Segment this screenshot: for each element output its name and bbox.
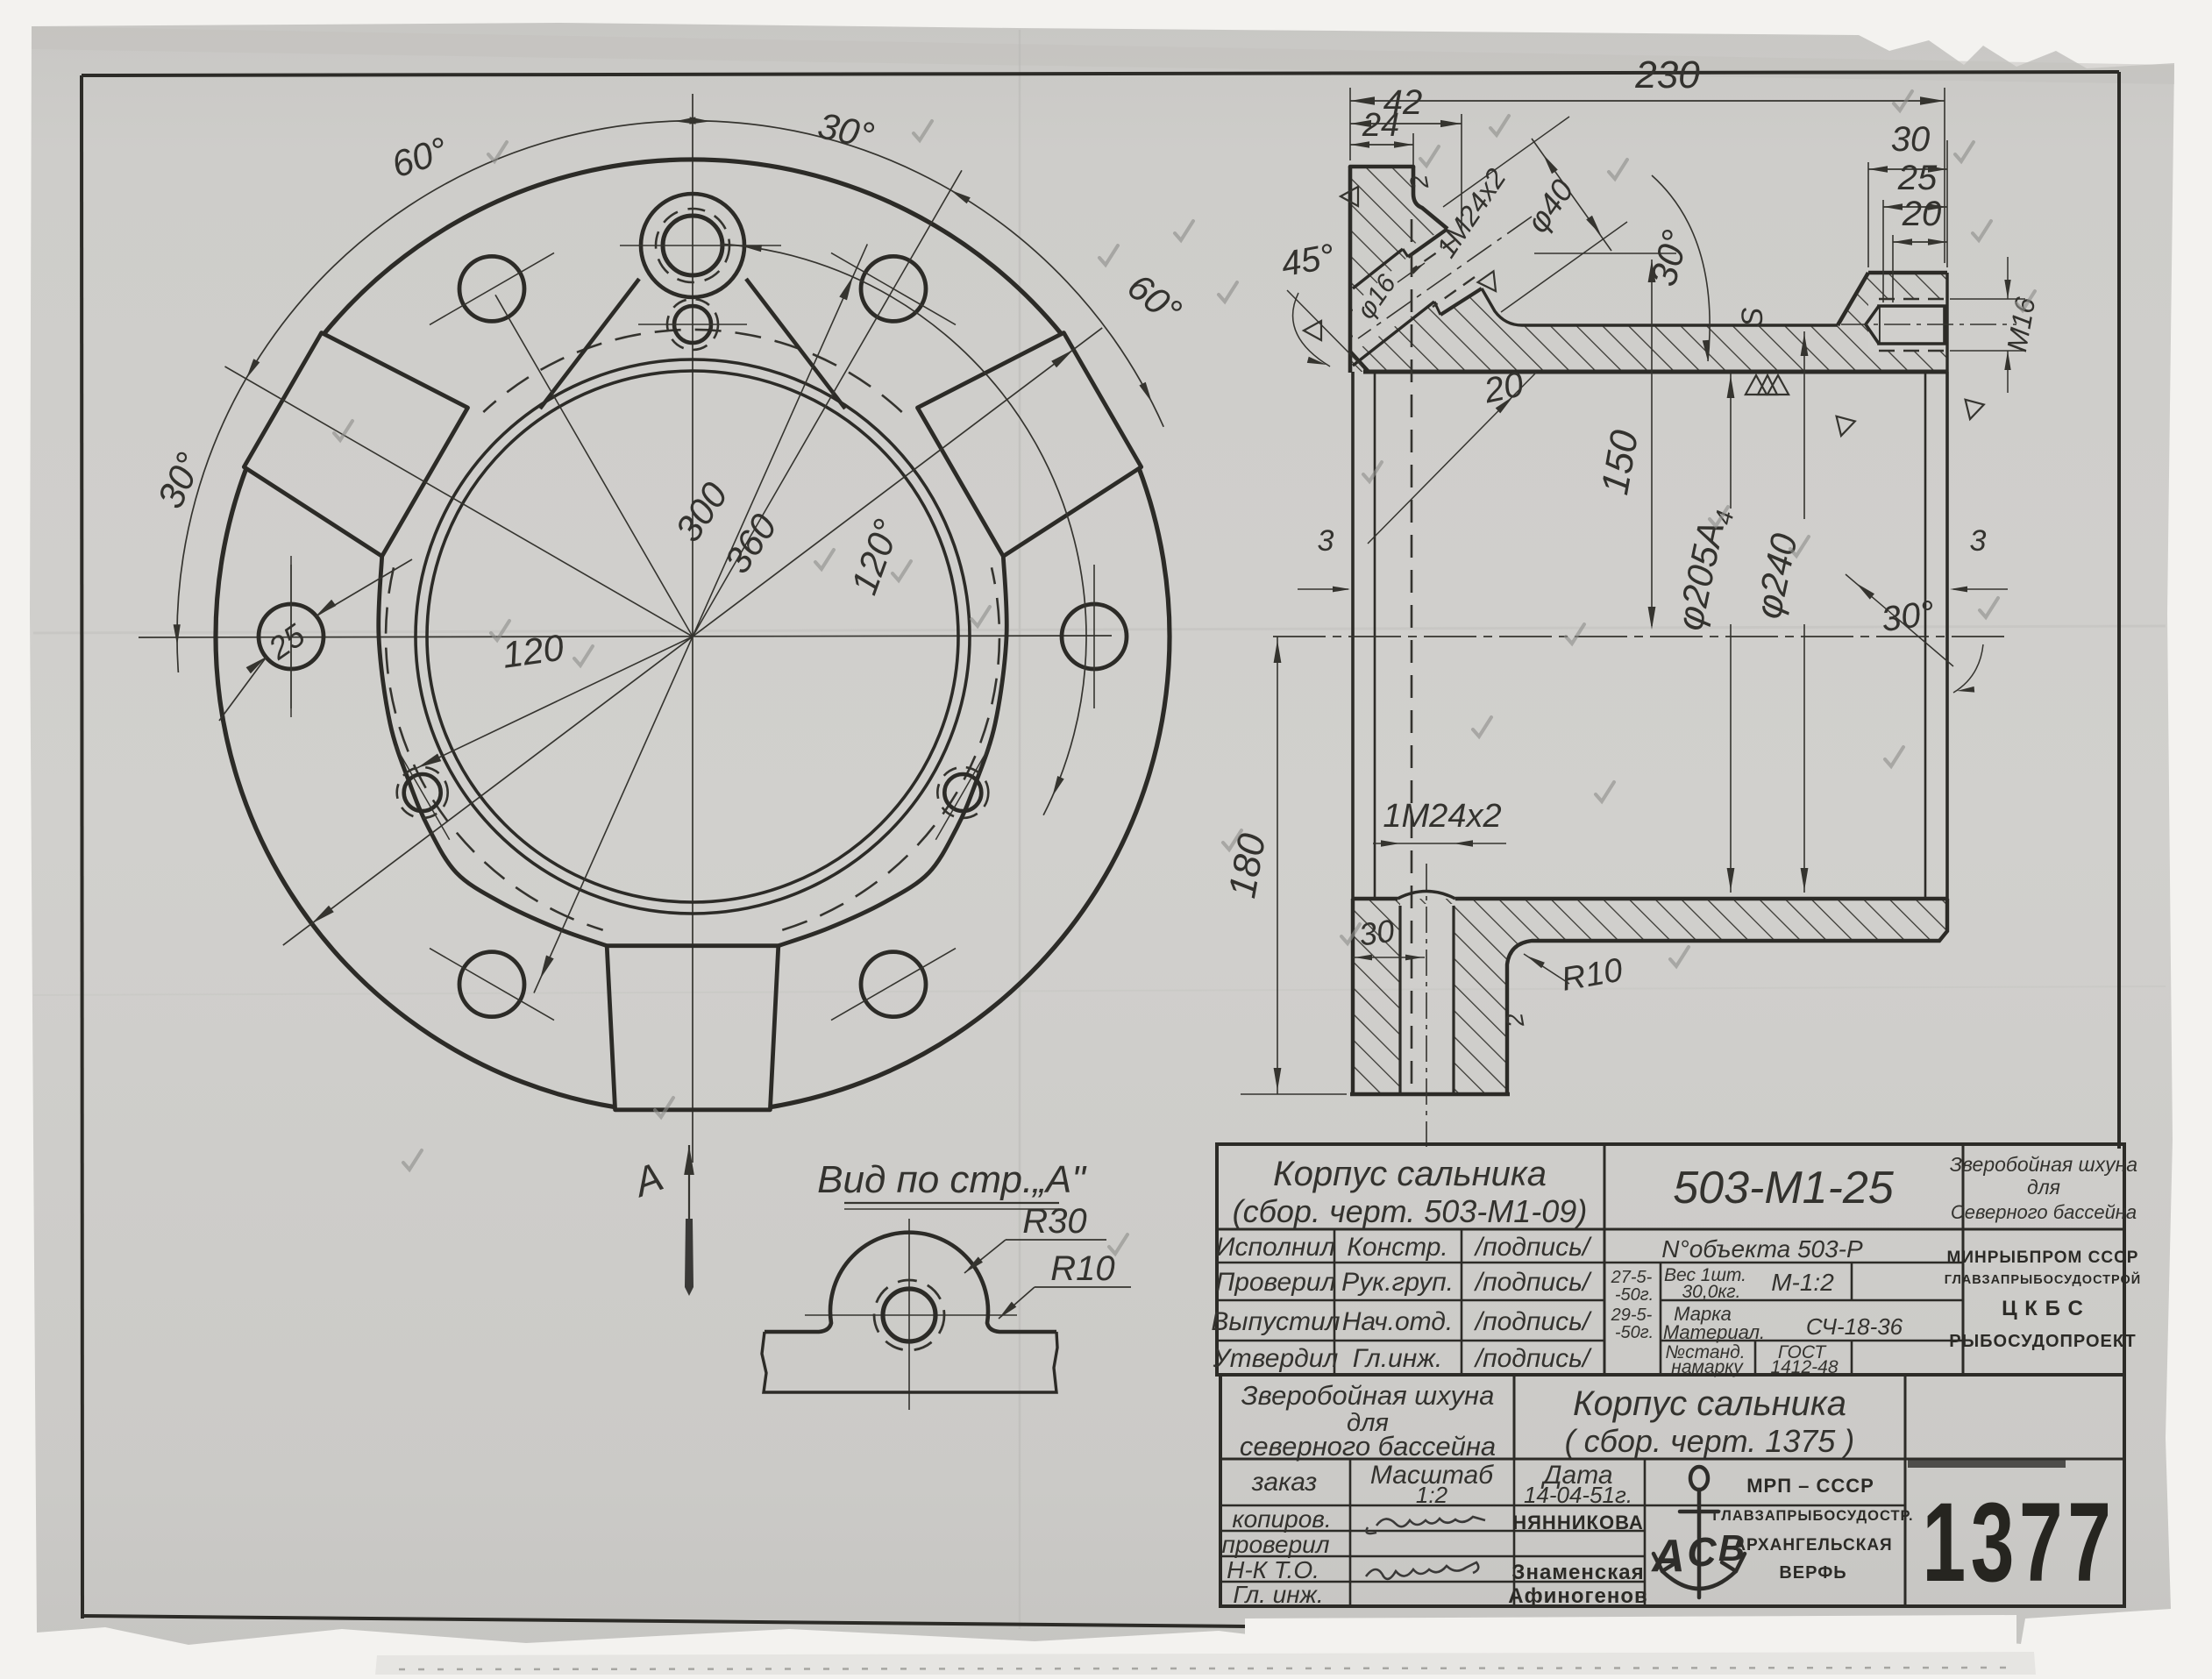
svg-text:503-М1-25: 503-М1-25 [1673, 1163, 1895, 1213]
svg-text:(сбор. черт. 503-М1-09): (сбор. черт. 503-М1-09) [1233, 1193, 1588, 1229]
svg-text:Выпустил: Выпустил [1211, 1307, 1340, 1336]
svg-text:Зверобойная шхуна: Зверобойная шхуна [1241, 1380, 1495, 1411]
svg-text:Гл. инж.: Гл. инж. [1233, 1581, 1323, 1608]
svg-text:14-04-51г.: 14-04-51г. [1524, 1482, 1632, 1508]
svg-text:N°объекта 503-Р: N°объекта 503-Р [1661, 1235, 1863, 1263]
svg-text:Знаменская: Знаменская [1511, 1561, 1644, 1584]
svg-text:/подпись/: /подпись/ [1474, 1344, 1592, 1373]
svg-text:СЧ-18-36: СЧ-18-36 [1806, 1313, 1903, 1340]
svg-text:РЫБОСУДОПРОЕКТ: РЫБОСУДОПРОЕКТ [1949, 1332, 2137, 1351]
svg-text:Проверил: Проверил [1215, 1268, 1335, 1297]
svg-text:Утвердил: Утвердил [1213, 1344, 1339, 1373]
svg-text:Исполнил: Исполнил [1216, 1233, 1335, 1262]
svg-text:Нач.отд.: Нач.отд. [1342, 1307, 1453, 1336]
svg-text:Гл.инж.: Гл.инж. [1353, 1344, 1442, 1373]
svg-text:заказ: заказ [1251, 1468, 1317, 1497]
svg-text:R30: R30 [1022, 1202, 1086, 1241]
svg-text:1377: 1377 [1923, 1480, 2116, 1605]
svg-text:НЯННИКОВА: НЯННИКОВА [1512, 1512, 1644, 1533]
svg-text:копиров.: копиров. [1232, 1505, 1331, 1533]
svg-text:Корпус сальника: Корпус сальника [1573, 1384, 1846, 1423]
svg-text:-50г.: -50г. [1615, 1285, 1654, 1305]
svg-text:30,0кг.: 30,0кг. [1682, 1282, 1741, 1302]
svg-text:проверил: проверил [1221, 1531, 1329, 1558]
svg-text:20: 20 [1902, 195, 1942, 233]
svg-text:ВЕРФЬ: ВЕРФЬ [1779, 1563, 1846, 1583]
svg-text:МРП – СССР: МРП – СССР [1746, 1475, 1874, 1497]
svg-text:S: S [1736, 307, 1769, 327]
svg-text:29-5-: 29-5- [1611, 1305, 1653, 1325]
svg-text:Н-К Т.О.: Н-К Т.О. [1227, 1556, 1319, 1583]
svg-text:1M24x2: 1M24x2 [1383, 798, 1501, 835]
svg-text:3: 3 [1318, 524, 1334, 558]
svg-text:/подпись/: /подпись/ [1474, 1233, 1592, 1262]
svg-text:27-5-: 27-5- [1611, 1268, 1653, 1287]
svg-text:С: С [1687, 1529, 1717, 1575]
svg-text:120: 120 [500, 626, 567, 675]
svg-text:ГЛАВЗАПРЫБОСУДОСТРОЙ: ГЛАВЗАПРЫБОСУДОСТРОЙ [1945, 1271, 2141, 1287]
svg-text:Констр.: Констр. [1347, 1233, 1448, 1262]
svg-text:25: 25 [1897, 159, 1938, 197]
svg-text:АРХАНГЕЛЬСКАЯ: АРХАНГЕЛЬСКАЯ [1733, 1536, 1892, 1554]
svg-text:30: 30 [1891, 120, 1931, 159]
svg-text:М-1:2: М-1:2 [1771, 1269, 1834, 1296]
svg-text:ГЛАВЗАПРЫБОСУДОСТР.: ГЛАВЗАПРЫБОСУДОСТР. [1712, 1508, 1913, 1524]
svg-text:R10: R10 [1050, 1249, 1114, 1288]
svg-text:230: 230 [1634, 53, 1700, 96]
svg-text:МИНРЫБПРОМ СССР: МИНРЫБПРОМ СССР [1947, 1249, 2139, 1267]
svg-text:Материал.: Материал. [1663, 1321, 1765, 1343]
svg-text:Рук.груп.: Рук.груп. [1341, 1268, 1454, 1297]
svg-text:3: 3 [1970, 524, 1987, 558]
svg-text:30°: 30° [1879, 594, 1937, 639]
svg-text:-50г.: -50г. [1615, 1323, 1654, 1342]
svg-text:А: А [1650, 1531, 1685, 1582]
svg-text:24: 24 [1362, 107, 1399, 144]
svg-text:В: В [1718, 1527, 1745, 1569]
svg-text:Корпус сальника: Корпус сальника [1273, 1155, 1547, 1193]
svg-text:30: 30 [1357, 913, 1397, 953]
svg-text:( сбор. черт. 1375 ): ( сбор. черт. 1375 ) [1565, 1423, 1855, 1459]
svg-text:/подпись/: /подпись/ [1474, 1307, 1592, 1336]
svg-text:Афиногенов: Афиногенов [1508, 1584, 1648, 1608]
svg-text:Зверобойная шхуна: Зверобойная шхуна [1950, 1153, 2137, 1176]
svg-text:20: 20 [1480, 365, 1527, 410]
svg-text:/подпись/: /подпись/ [1474, 1268, 1592, 1297]
svg-text:Ц К Б С: Ц К Б С [2002, 1297, 2084, 1320]
svg-text:Северного бассейна: Северного бассейна [1951, 1201, 2137, 1223]
svg-text:1:2: 1:2 [1416, 1482, 1448, 1508]
svg-text:северного бассейна: северного бассейна [1240, 1431, 1496, 1462]
svg-text:для: для [2027, 1176, 2060, 1199]
svg-text:Вид по стр.„А": Вид по стр.„А" [817, 1158, 1087, 1201]
